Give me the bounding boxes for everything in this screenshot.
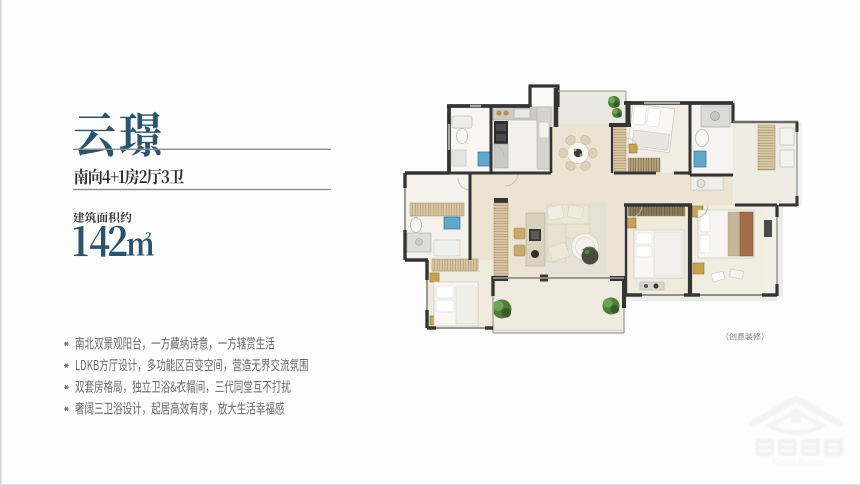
svg-text:Good Room: Good Room (772, 457, 823, 468)
